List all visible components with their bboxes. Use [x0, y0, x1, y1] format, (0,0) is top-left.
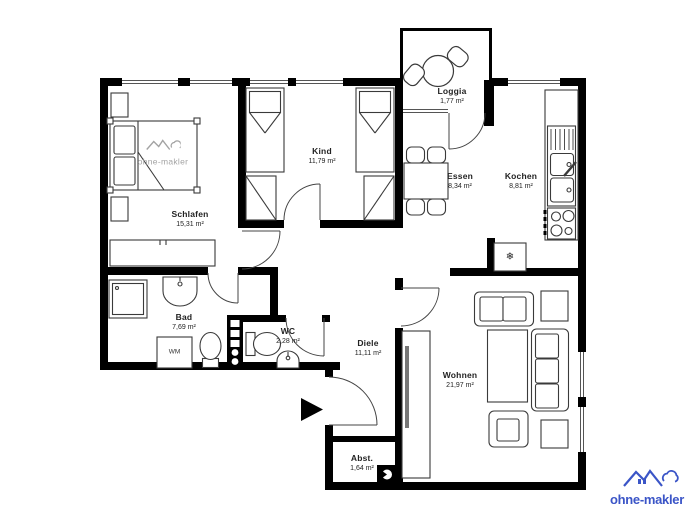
room-label-schlafen: Schlafen 15,31 m² — [171, 209, 208, 229]
watermark-text: ohne-makler — [138, 157, 189, 167]
bedroom-furniture — [107, 93, 215, 266]
room-area: 2,28 m² — [276, 337, 300, 346]
room-label-loggia: Loggia 1,77 m² — [437, 86, 466, 106]
washing-machine-label: WM — [169, 349, 181, 356]
room-name: WC — [276, 326, 300, 337]
room-label-diele: Diele 11,11 m² — [355, 338, 382, 358]
room-area: 7,69 m² — [172, 323, 196, 332]
room-name: Essen — [447, 171, 473, 182]
freezer-icon: ❄ — [506, 252, 514, 263]
room-label-abst: Abst. 1,64 m² — [350, 453, 374, 473]
tv — [405, 346, 409, 428]
storage-door-symbol — [377, 465, 397, 484]
room-name: Kind — [308, 146, 335, 157]
living-room-furniture — [402, 291, 569, 478]
room-area: 1,77 m² — [437, 97, 466, 106]
room-area: 11,11 m² — [355, 349, 382, 358]
room-name: Schlafen — [171, 209, 208, 220]
watermark: ohne-makler — [138, 138, 189, 167]
room-label-kind: Kind 11,79 m² — [308, 146, 335, 166]
room-name: Diele — [355, 338, 382, 349]
room-label-essen: Essen 8,34 m² — [447, 171, 473, 191]
floor-plan-page: Schlafen 15,31 m² Kind 11,79 m² Loggia 1… — [0, 0, 693, 520]
room-name: Bad — [172, 312, 196, 323]
room-name: Loggia — [437, 86, 466, 97]
watermark-mountain-cloud-icon — [145, 139, 181, 151]
brand-logo: ohne-makler — [604, 466, 690, 507]
room-name: Kochen — [505, 171, 537, 182]
room-area: 8,34 m² — [447, 182, 473, 191]
room-area: 8,81 m² — [505, 182, 537, 191]
room-label-bad: Bad 7,69 m² — [172, 312, 196, 332]
entrance-arrow-icon — [301, 398, 323, 421]
dining-set — [404, 147, 448, 215]
brand-logo-text: ohne-makler — [604, 492, 690, 507]
room-label-kochen: Kochen 8,81 m² — [505, 171, 537, 191]
room-area: 11,79 m² — [308, 157, 335, 166]
loggia-table-chairs — [401, 44, 470, 88]
door-openings — [208, 220, 333, 425]
floor-plan-graphic — [0, 0, 693, 520]
room-area: 15,31 m² — [171, 220, 208, 229]
room-area: 1,64 m² — [350, 464, 374, 473]
room-name: Wohnen — [443, 370, 478, 381]
room-label-wc: WC 2,28 m² — [276, 326, 300, 346]
room-name: Abst. — [350, 453, 374, 464]
logo-mountain-cloud-icon — [612, 466, 682, 488]
room-area: 21,97 m² — [443, 381, 478, 390]
bathroom-fixtures — [109, 277, 221, 368]
room-label-wohnen: Wohnen 21,97 m² — [443, 370, 478, 390]
